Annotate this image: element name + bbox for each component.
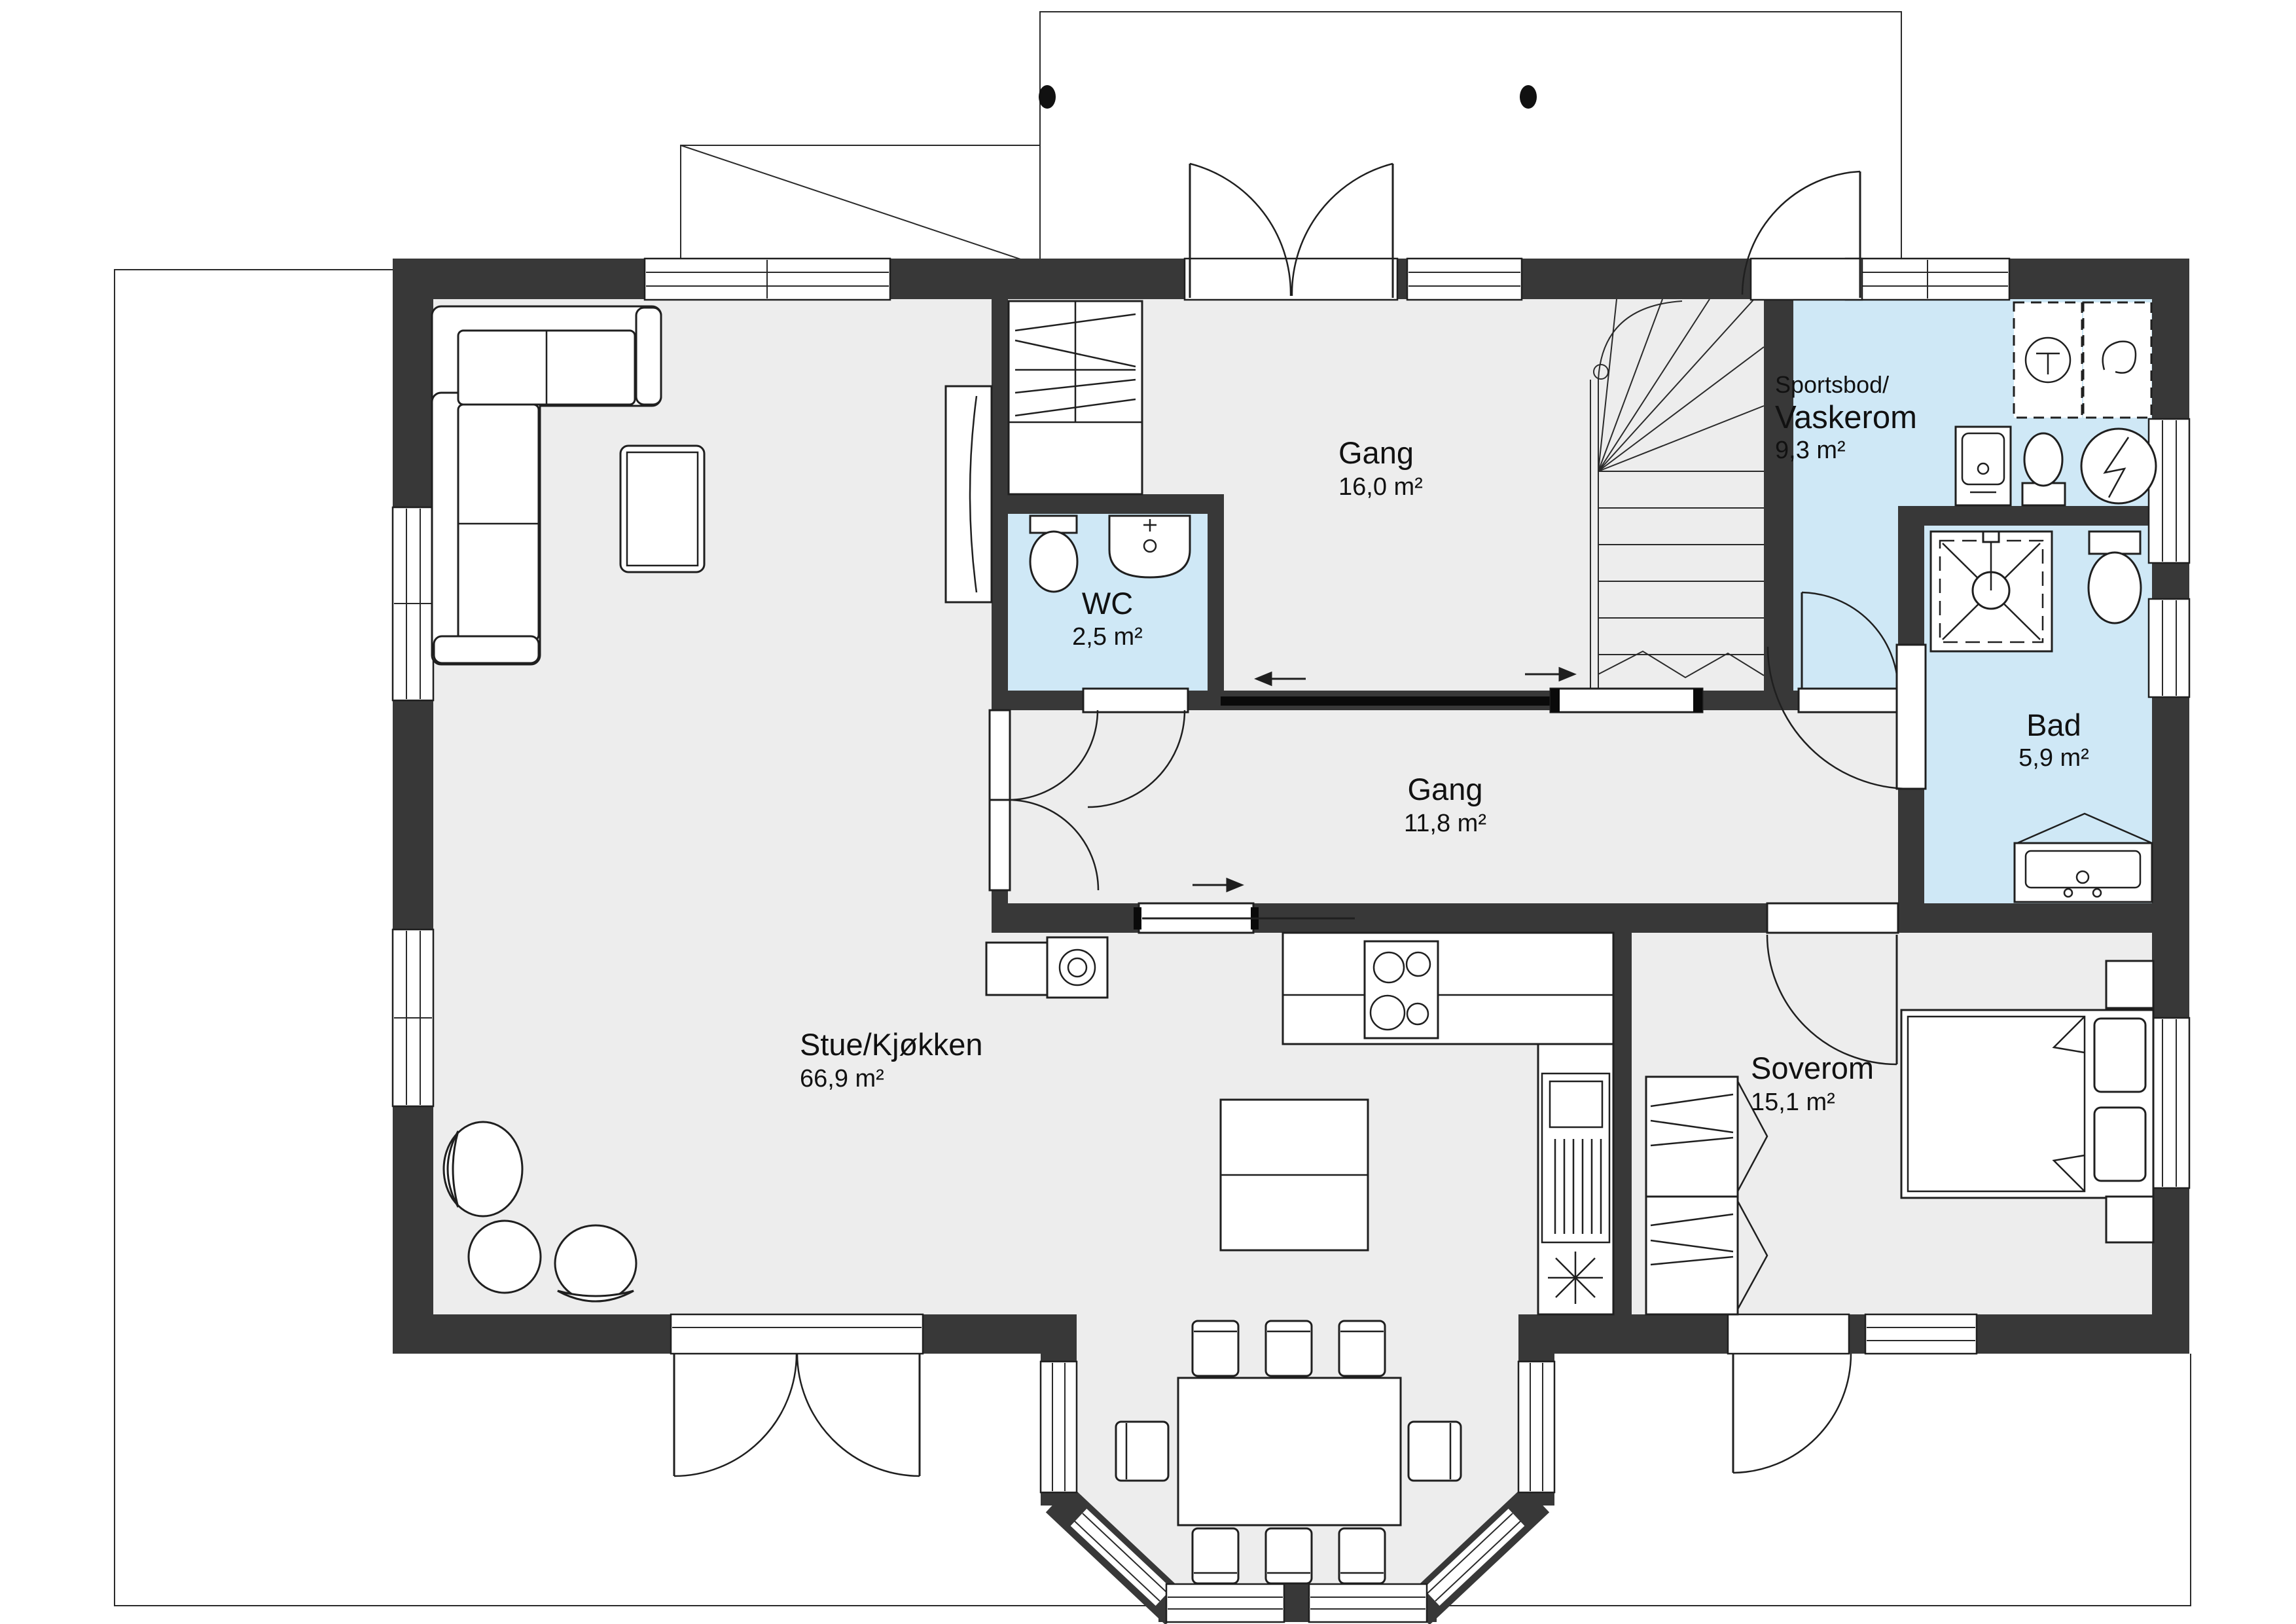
kitchen-sink-symbol [1548,1252,1603,1304]
dryer [2083,302,2151,418]
small-toilet [2022,433,2065,505]
room-label-gang2: Gang [1408,772,1483,806]
toilet [2089,532,2141,623]
room-label-vaskerom-2: Vaskerom [1775,400,1917,435]
room-label-stue: Stue/Kjøkken [800,1027,983,1062]
tv [946,386,992,602]
wood-stove [986,937,1107,998]
kitchen-counter [1283,933,1613,1044]
terrace-double-door-north [1185,164,1397,300]
nightstand [2106,1197,2153,1242]
entrance-door [1742,171,1862,300]
hall-wardrobe [1009,301,1142,494]
room-area-wc: 2,5 m² [1072,623,1143,651]
room-area-vaskerom: 9,3 m² [1775,437,1846,464]
room-area-bad: 5,9 m² [2018,744,2089,772]
nightstand [2106,961,2153,1008]
entrance-deck [1039,12,1901,262]
room-area-gang1: 16,0 m² [1338,473,1423,501]
armchair [444,1122,522,1216]
room-area-soverom: 15,1 m² [1751,1089,1835,1116]
terrace-double-door-south [671,1314,923,1476]
room-area-stue: 66,9 m² [800,1065,884,1092]
coffee-table [620,446,704,572]
shower [1931,532,2052,651]
dining-table [1178,1378,1401,1525]
room-area-gang2: 11,8 m² [1404,810,1486,837]
carport-outline [681,145,1040,266]
water-heater [2081,429,2156,503]
room-label-soverom: Soverom [1751,1051,1874,1085]
room-label-bad: Bad [2026,708,2081,742]
laundry-sink [1956,427,2011,505]
soverom-terrace-door [1728,1314,1851,1473]
floor-plan: Stue/Kjøkken 66,9 m² Gang 16,0 m² Sports… [0,0,2296,1624]
washer [2014,302,2082,418]
toilet [1030,516,1077,592]
pouf [469,1221,541,1293]
armchair [555,1225,636,1301]
room-label-wc: WC [1082,586,1133,621]
deck-post [1039,85,1056,109]
cooktop [1365,941,1438,1038]
kitchen-island [1221,1100,1368,1250]
room-label-gang1: Gang [1338,435,1414,470]
room-label-vaskerom-1: Sportsbod/ [1775,371,1889,398]
double-bed [1901,1010,2153,1198]
deck-post [1520,85,1537,109]
sink [1109,516,1190,577]
